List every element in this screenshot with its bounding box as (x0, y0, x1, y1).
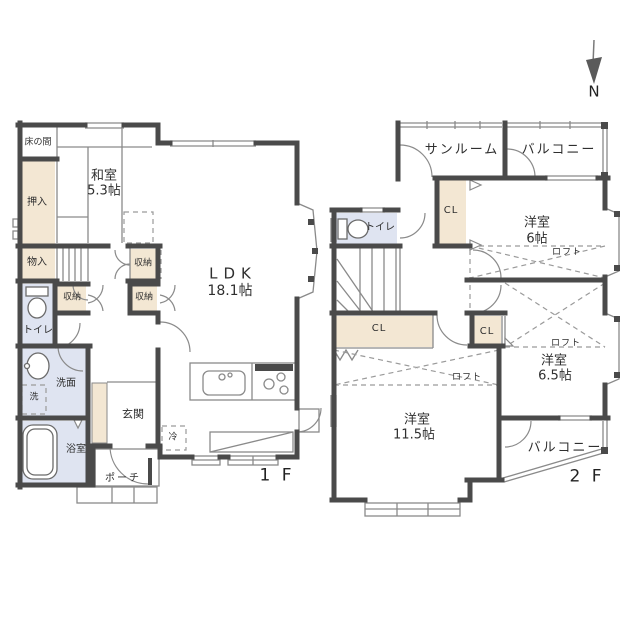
toilet-icon-2f (338, 219, 368, 239)
room-label-toilet-1f: トイレ (23, 326, 53, 336)
room-label-room65: 洋室 (541, 355, 567, 368)
toilet-icon-1f (26, 287, 48, 318)
bathtub-icon (23, 425, 57, 479)
room-label-washroom: 洗面 (56, 379, 76, 389)
room-label-porch: ポーチ (105, 474, 141, 484)
loft-label-1: ロフト (552, 249, 582, 258)
room-label-bath: 浴室 (66, 445, 86, 455)
north-arrow-icon (586, 40, 602, 84)
room-size-washitsu: 5.3帖 (87, 185, 121, 198)
room-label-sunroom: サンルーム (425, 144, 500, 157)
room-size-ldk: 18.1帖 (207, 284, 252, 298)
room-label-toilet-2f: トイレ (365, 223, 395, 233)
floor-label-1f: 1 F (260, 468, 295, 485)
room-label-entrance: 玄関 (122, 409, 144, 420)
north-label: N (588, 85, 599, 100)
loft-label-3: ロフト (452, 374, 482, 383)
room-label-oshiire: 押入 (27, 198, 47, 208)
room-label-balcony-bottom: バルコニー (528, 442, 603, 455)
room-label-cl-long: CL (372, 324, 387, 334)
room-label-monoire: 物入 (27, 258, 47, 268)
room-label-balcony-top: バルコニー (522, 144, 597, 157)
room-label-cl-small: CL (480, 327, 495, 337)
room-label-washitsu: 和室 (91, 170, 117, 183)
room-label-room115: 洋室 (404, 414, 430, 427)
room-label-tokonoma: 床の間 (24, 139, 51, 148)
room-size-room65: 6.5帖 (538, 370, 572, 383)
room-label-closet1: 収納 (134, 260, 152, 269)
room-size-room6: 6帖 (526, 233, 547, 246)
loft-label-2: ロフト (551, 340, 581, 349)
room-label-closet2: 収納 (63, 294, 81, 303)
floorplan-canvas: 床の間 和室 5.3帖 押入 物入 収納 収納 収納 トイレ 洗面 洗 浴室 玄… (0, 0, 640, 640)
floorplan-drawing (0, 0, 640, 640)
room-label-ldk: LDK (209, 267, 257, 282)
floor-label-2f: 2 F (570, 469, 605, 486)
room-label-cl-upper: CL (444, 206, 459, 216)
room-label-washer: 洗 (29, 394, 38, 403)
room-size-room115: 11.5帖 (393, 429, 435, 442)
room-label-room6: 洋室 (524, 217, 550, 230)
room-label-closet3: 収納 (135, 294, 153, 303)
fridge-label: 冷 (168, 434, 177, 443)
